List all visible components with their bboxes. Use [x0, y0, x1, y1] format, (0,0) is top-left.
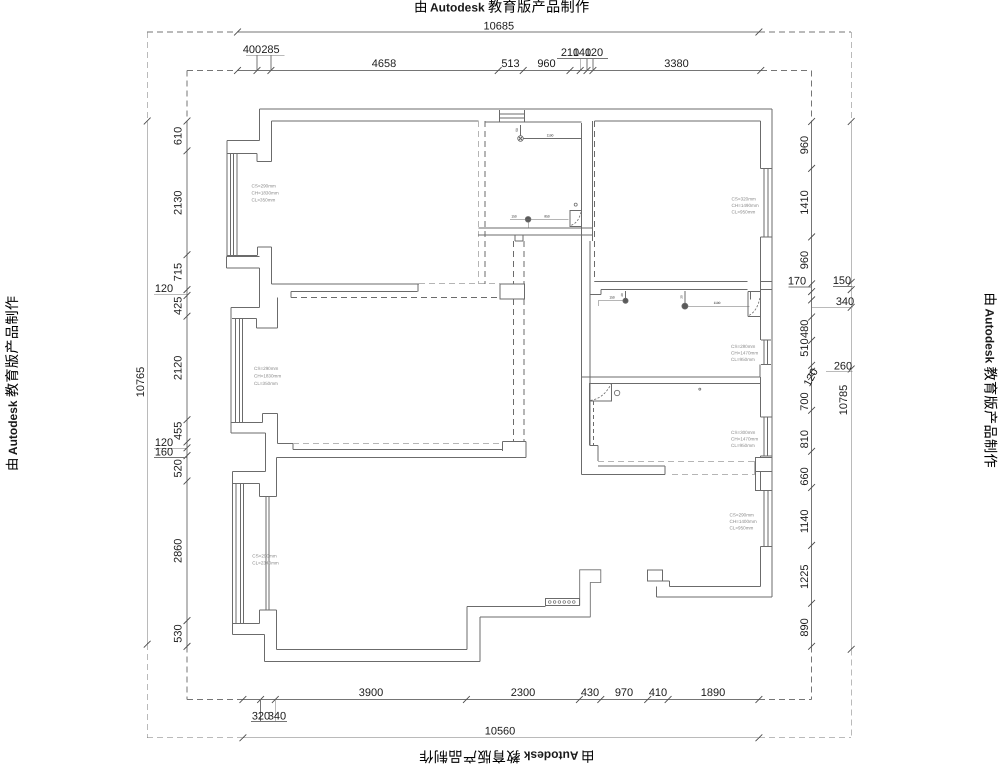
svg-text:CL=350mm: CL=350mm [254, 381, 278, 386]
svg-text:610: 610 [173, 127, 185, 145]
svg-text:CS=290mm: CS=290mm [730, 513, 755, 518]
svg-text:2300: 2300 [511, 687, 535, 699]
svg-text:1225: 1225 [799, 564, 811, 588]
svg-text:960: 960 [799, 251, 811, 269]
svg-text:425: 425 [173, 297, 185, 315]
svg-text:10765: 10765 [135, 367, 147, 398]
svg-text:660: 660 [799, 467, 811, 485]
svg-text:CL=350mm: CL=350mm [252, 198, 276, 203]
svg-text:10560: 10560 [485, 726, 516, 738]
svg-text:4658: 4658 [372, 58, 396, 70]
svg-text:970: 970 [615, 687, 633, 699]
svg-text:CH=1490mm: CH=1490mm [732, 203, 759, 208]
svg-text:10685: 10685 [484, 21, 515, 33]
svg-text:430: 430 [581, 687, 599, 699]
svg-text:510: 510 [799, 338, 811, 356]
svg-text:120: 120 [155, 283, 173, 295]
svg-text:285: 285 [261, 44, 279, 56]
svg-text:340: 340 [836, 296, 854, 308]
svg-text:CS=290mm: CS=290mm [254, 366, 279, 371]
svg-text:410: 410 [649, 687, 667, 699]
svg-text:1190: 1190 [547, 134, 554, 138]
svg-text:455: 455 [173, 422, 185, 440]
svg-text:3380: 3380 [664, 58, 688, 70]
svg-text:20: 20 [680, 295, 684, 299]
svg-text:120: 120 [585, 47, 603, 59]
svg-text:513: 513 [501, 58, 519, 70]
svg-text:1140: 1140 [799, 509, 811, 533]
svg-text:2120: 2120 [173, 356, 185, 380]
svg-text:850: 850 [544, 215, 550, 219]
svg-text:480: 480 [799, 320, 811, 338]
svg-text:1890: 1890 [701, 687, 725, 699]
svg-text:CS=300mm: CS=300mm [731, 430, 756, 435]
svg-text:150: 150 [833, 275, 851, 287]
svg-text:2130: 2130 [173, 190, 185, 214]
svg-text:CS=280mm: CS=280mm [731, 344, 756, 349]
svg-text:340: 340 [268, 711, 286, 723]
svg-text:890: 890 [799, 618, 811, 636]
svg-text:CS=290mm: CS=290mm [252, 184, 277, 189]
svg-text:960: 960 [799, 136, 811, 154]
svg-text:50: 50 [515, 128, 519, 132]
svg-text:CH=1830mm: CH=1830mm [252, 191, 279, 196]
svg-text:400: 400 [243, 44, 261, 56]
svg-text:150: 150 [511, 215, 517, 219]
svg-text:Autodesk: Autodesk [524, 749, 579, 763]
svg-text:260: 260 [834, 361, 852, 373]
svg-text:10785: 10785 [838, 385, 850, 416]
svg-text:CH=1470mm: CH=1470mm [731, 351, 758, 356]
svg-text:3900: 3900 [359, 687, 383, 699]
svg-text:530: 530 [173, 624, 185, 642]
svg-text:520: 520 [173, 459, 185, 477]
svg-text:700: 700 [799, 392, 811, 410]
svg-text:1410: 1410 [799, 190, 811, 214]
svg-text:2860: 2860 [173, 539, 185, 563]
svg-text:960: 960 [537, 58, 555, 70]
svg-text:Autodesk: Autodesk [983, 309, 997, 364]
svg-text:CH=1400mm: CH=1400mm [730, 519, 757, 524]
svg-text:CL=950mm: CL=950mm [730, 526, 754, 531]
svg-text:CL=950mm: CL=950mm [731, 357, 755, 362]
svg-text:20: 20 [620, 293, 624, 297]
svg-text:810: 810 [799, 430, 811, 448]
svg-text:150: 150 [609, 295, 615, 299]
svg-text:CL=2340mm: CL=2340mm [252, 561, 279, 566]
svg-text:CS=320mm: CS=320mm [732, 197, 757, 202]
svg-text:1190: 1190 [714, 301, 721, 305]
svg-text:CS=290mm: CS=290mm [252, 554, 277, 559]
svg-text:CL=950mm: CL=950mm [731, 443, 755, 448]
svg-text:CH=1830mm: CH=1830mm [254, 374, 281, 379]
svg-text:CL=950mm: CL=950mm [732, 210, 756, 215]
svg-text:715: 715 [173, 263, 185, 281]
svg-text:170: 170 [788, 276, 806, 288]
svg-text:Autodesk: Autodesk [6, 400, 20, 455]
svg-text:160: 160 [155, 447, 173, 459]
svg-text:Autodesk: Autodesk [430, 1, 485, 15]
svg-text:CH=1470mm: CH=1470mm [731, 437, 758, 442]
